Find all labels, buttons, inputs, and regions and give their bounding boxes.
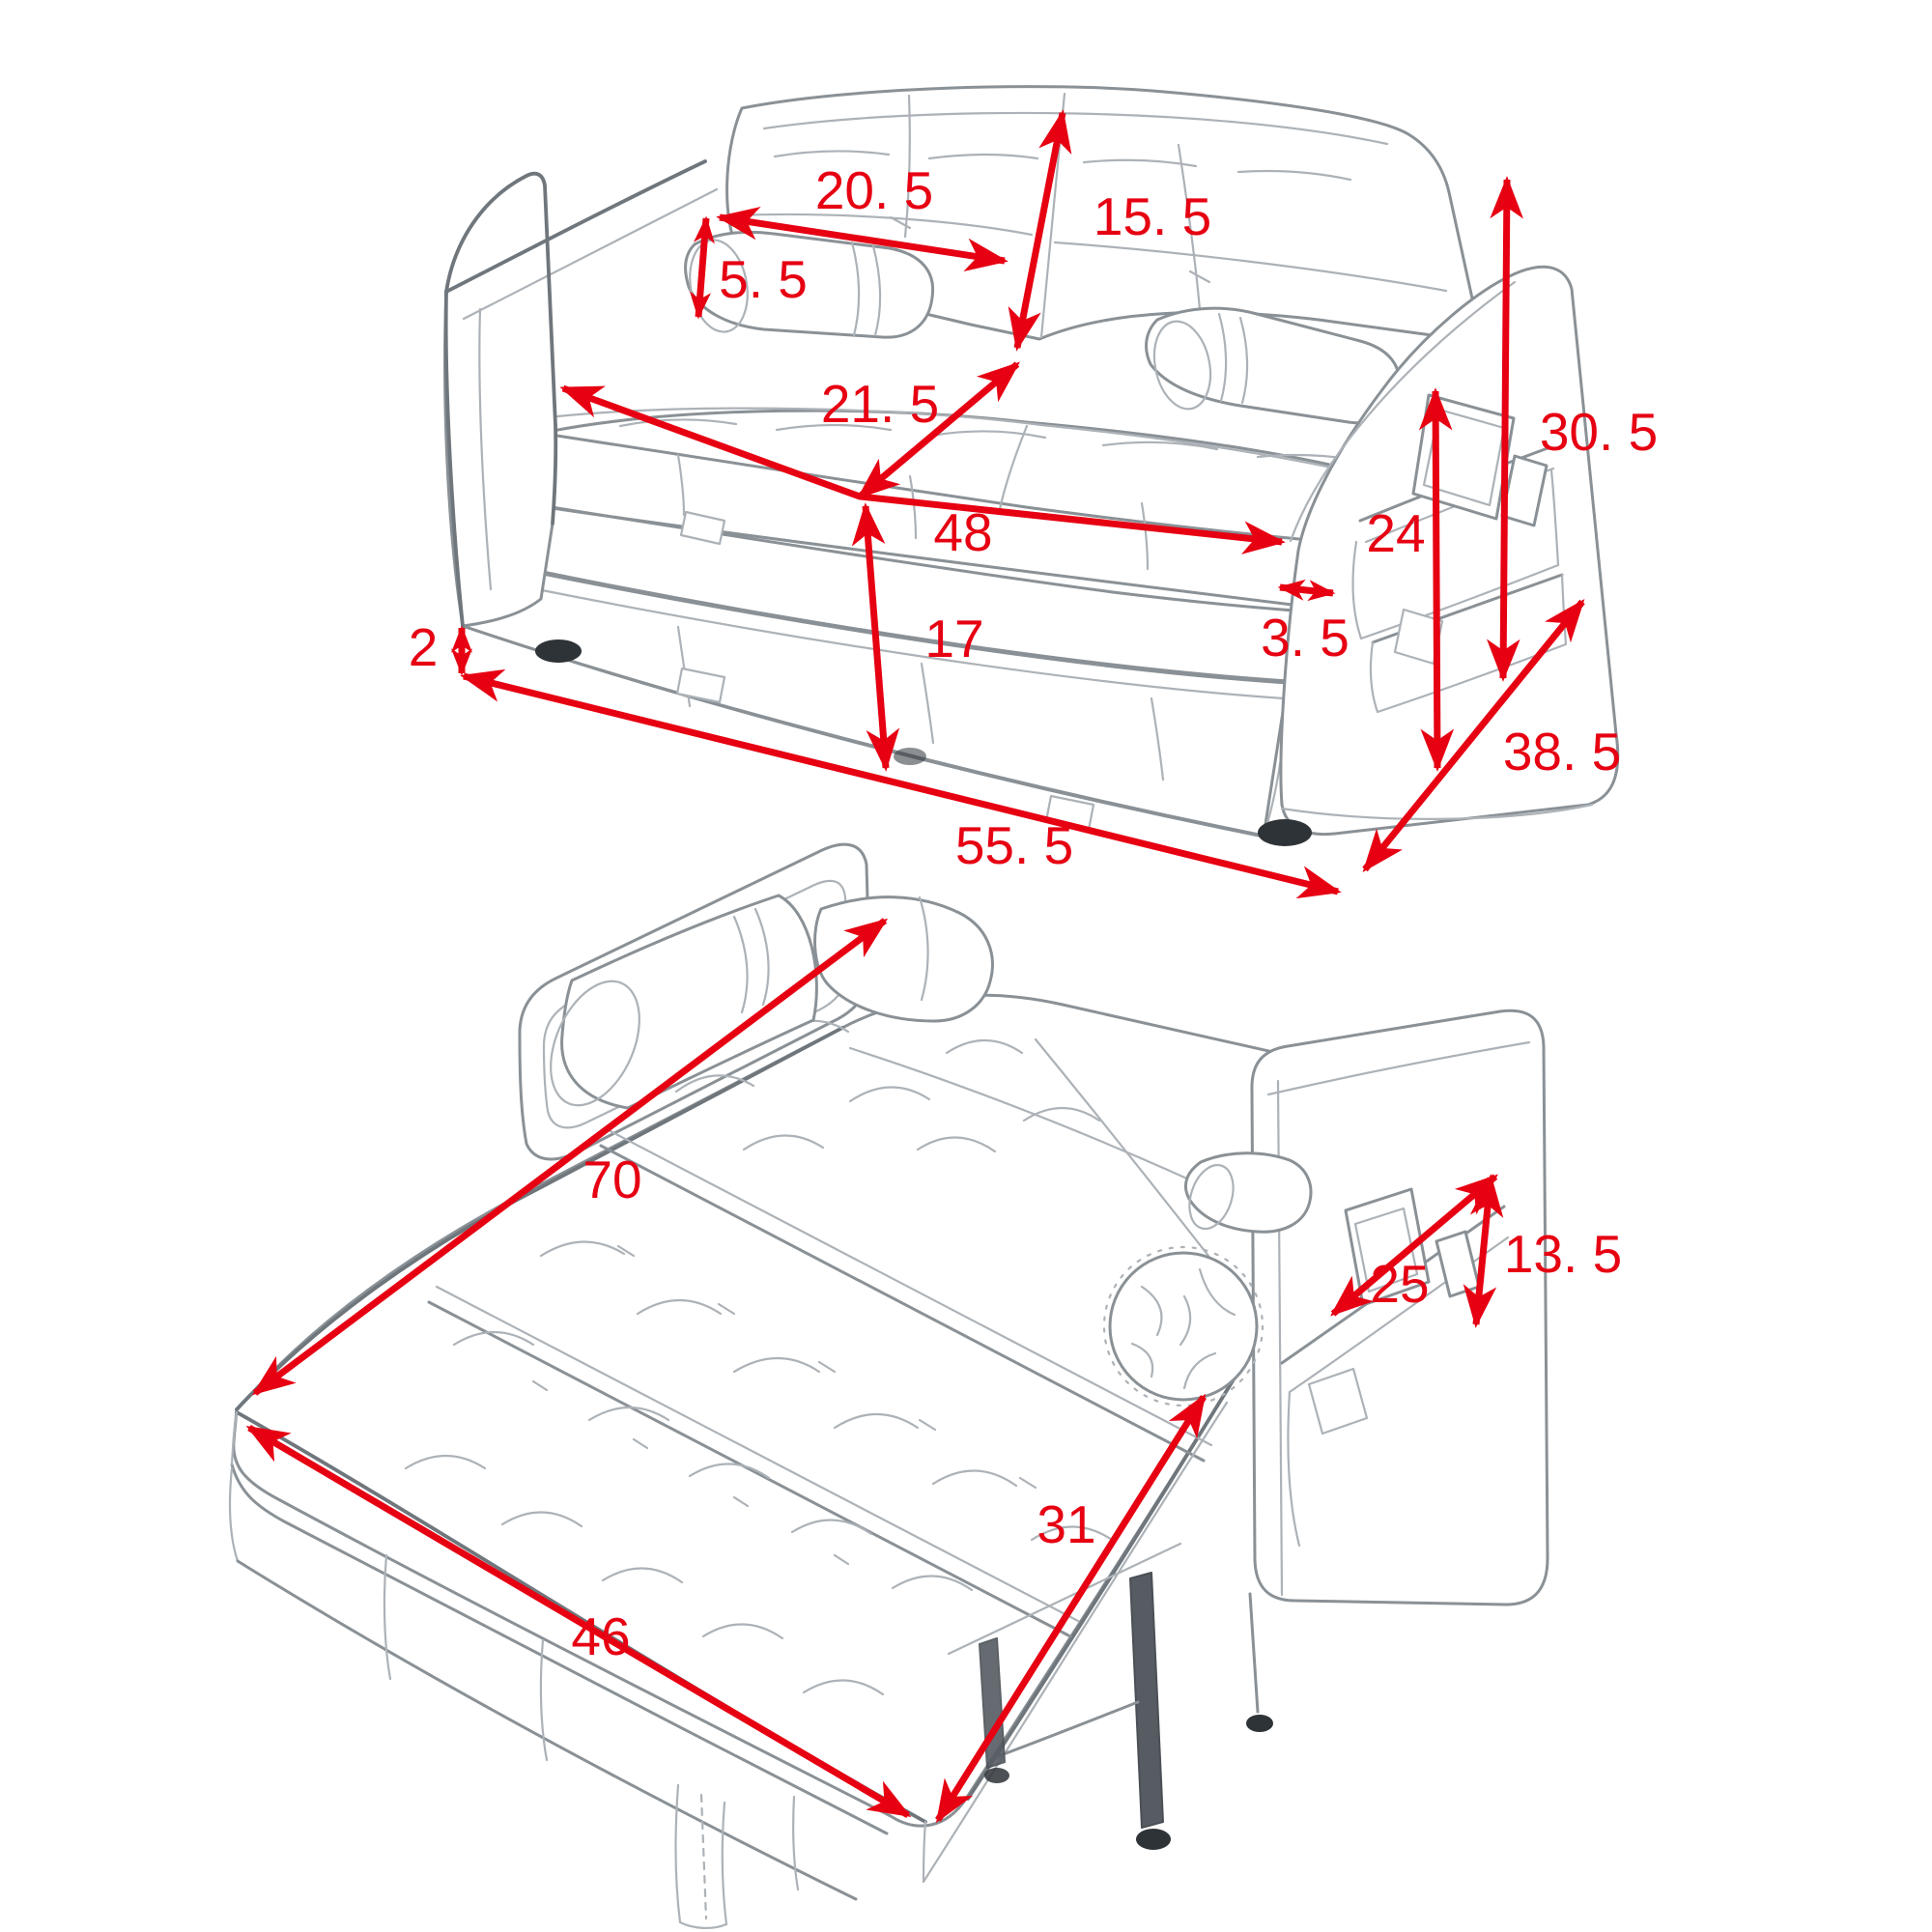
caster-wheel: [1246, 1715, 1273, 1732]
sofa-foot-right: [1258, 819, 1312, 846]
svg-text:24: 24: [1366, 503, 1425, 563]
svg-text:25: 25: [1370, 1254, 1429, 1314]
svg-text:5. 5: 5. 5: [719, 249, 808, 309]
svg-text:46: 46: [571, 1606, 630, 1666]
svg-text:15. 5: 15. 5: [1094, 186, 1211, 246]
svg-text:13. 5: 13. 5: [1504, 1224, 1622, 1284]
svg-text:17: 17: [924, 609, 983, 668]
sofa-foot-left: [535, 639, 582, 663]
svg-text:20. 5: 20. 5: [815, 160, 933, 220]
svg-text:48: 48: [933, 502, 992, 562]
svg-text:3. 5: 3. 5: [1261, 608, 1350, 668]
bed-extended-sketch: [230, 844, 1548, 1928]
zipper-flap: [676, 1785, 726, 1928]
svg-text:31: 31: [1037, 1494, 1095, 1554]
svg-text:2: 2: [409, 617, 439, 677]
sofa-compact-sketch: [445, 87, 1618, 846]
svg-text:30. 5: 30. 5: [1540, 402, 1658, 462]
sofa-foot-middle: [894, 748, 926, 765]
svg-text:70: 70: [582, 1150, 641, 1209]
dim-leg-height: 2: [409, 617, 462, 677]
svg-text:21. 5: 21. 5: [821, 374, 939, 434]
caster-wheel: [1136, 1829, 1171, 1850]
diagram-canvas: 20. 5 15. 5 5. 5 21. 5 48 17 3. 5 24: [0, 0, 1932, 1932]
sofa-bed-dimension-diagram: 20. 5 15. 5 5. 5 21. 5 48 17 3. 5 24: [0, 0, 1932, 1932]
caster-wheel: [984, 1768, 1009, 1783]
svg-text:55. 5: 55. 5: [955, 815, 1073, 875]
svg-text:38. 5: 38. 5: [1503, 722, 1621, 781]
